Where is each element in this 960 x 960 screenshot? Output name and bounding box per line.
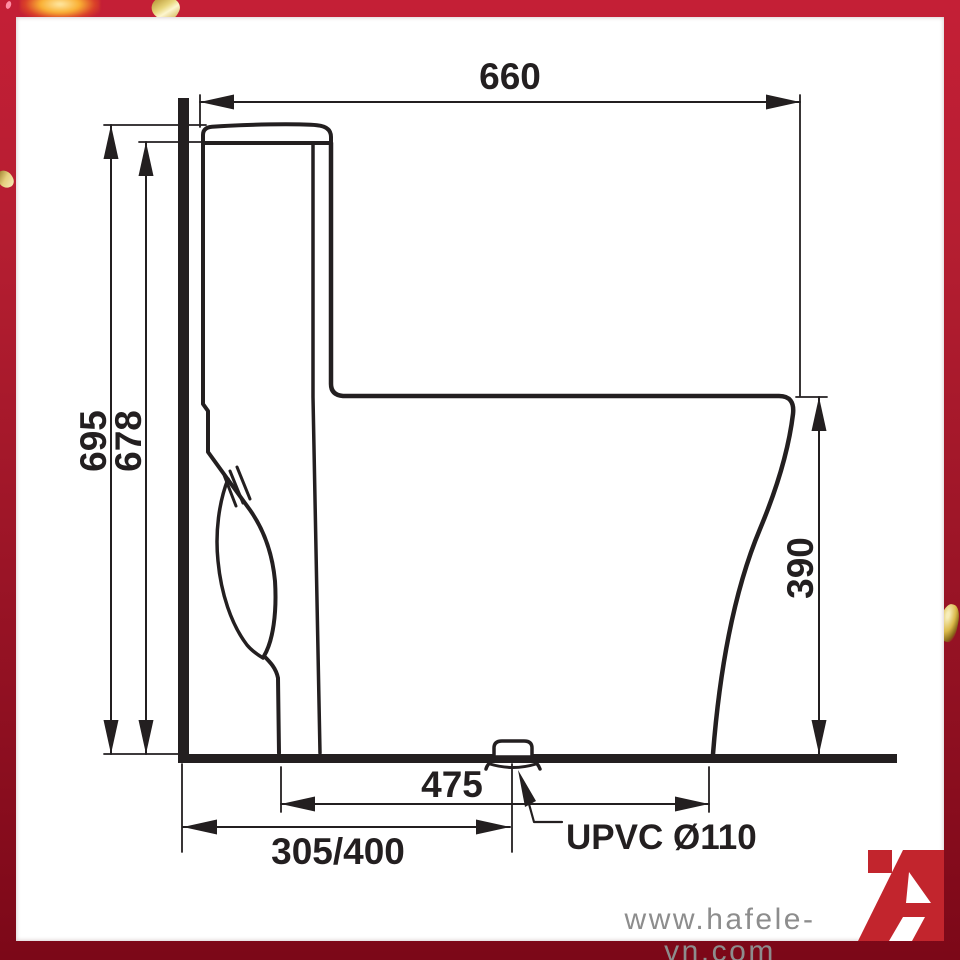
dim-label-bowl-rim-height: 390 — [781, 488, 821, 648]
dim-label-overall-width: 660 — [430, 57, 590, 97]
outlet-pipe-label: UPVC Ø110 — [566, 820, 757, 856]
promo-frame: 660 695 678 390 475 305/400 UPVC Ø110 ww… — [0, 0, 960, 960]
confetti-gold-left-icon — [0, 168, 15, 190]
website-watermark: www.hafele-vn.com — [570, 904, 870, 960]
dim-label-tank-top-height: 678 — [109, 361, 149, 521]
dim-label-rough-in: 305/400 — [258, 832, 418, 872]
dim-label-bowl-depth: 475 — [372, 765, 532, 805]
confetti-pink-dot-icon — [5, 0, 12, 9]
